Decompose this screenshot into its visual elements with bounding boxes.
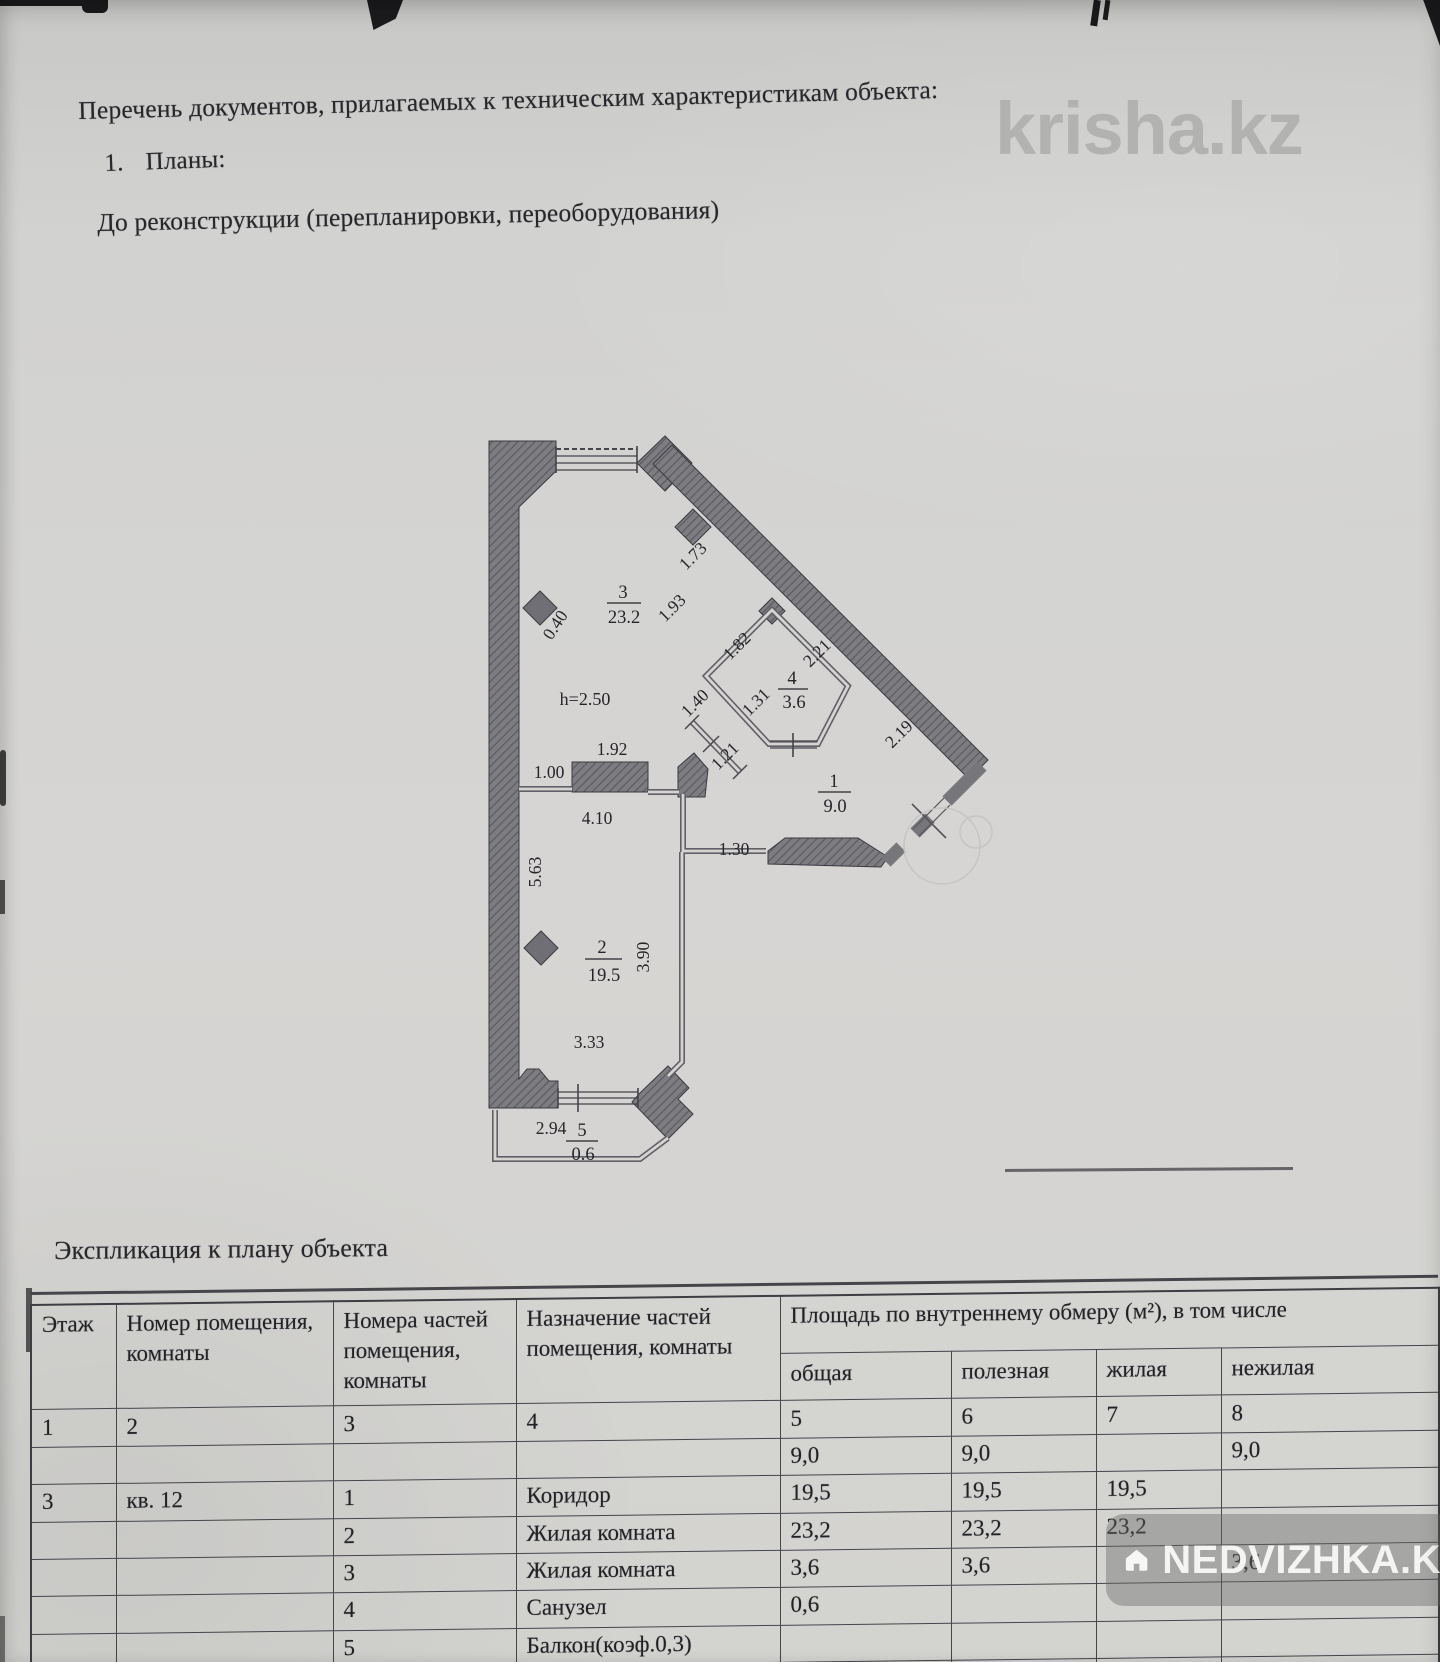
scan-artifact [1090,0,1101,26]
floor-plan: 0.40 1.73 1.93 1.82 2.21 1.31 1.40 1.21 … [440,400,1000,1175]
table-cell: Коридор [516,1476,780,1517]
table-cell: 6 [951,1396,1096,1436]
dim-label-2-94: 2.94 [536,1118,567,1138]
dim-label-3-33: 3.33 [574,1032,605,1052]
col-header-floor: Этаж [31,1303,116,1409]
list-item-number: 1. [104,149,124,178]
table-cell: Жилая комната [516,1513,780,1554]
col-header-area-group: Площадь по внутреннему обмеру (м²), в то… [780,1287,1439,1353]
table-cell: 23,2 [780,1511,951,1550]
scan-artifact [0,880,5,914]
table-cell: 3,6 [951,1546,1096,1585]
room2-area: 19.5 [588,966,620,986]
table-cell [1096,1620,1221,1659]
table-cell: Санузел [516,1588,780,1629]
scan-artifact [82,0,108,13]
room4-number: 4 [787,669,796,689]
table-cell: 5 [333,1628,516,1662]
table-cell [516,1438,780,1479]
dim-label-3-90: 3.90 [633,941,653,972]
table-cell: 2 [333,1516,516,1556]
table-cell: 3,6 [780,1548,951,1587]
dim-label-1-73: 1.73 [675,538,711,574]
table-cell [31,1596,116,1634]
col-header-purpose: Назначение частей помещения, комнаты [516,1295,780,1403]
table-cell: 3 [31,1484,116,1522]
col-header-nonliving: нежилая [1221,1345,1439,1395]
scan-artifact [0,1616,5,1662]
scan-artifact [0,750,6,806]
table-cell [780,1623,951,1662]
table-cell: Балкон(коэф.0,3) [516,1625,780,1662]
stain-mark [904,808,992,884]
table-cell: 9,0 [951,1434,1096,1473]
table-cell: 2 [116,1405,333,1446]
table-cell: 1 [31,1408,116,1447]
table-cell [31,1446,116,1484]
table-cell: 19,5 [951,1472,1096,1511]
dim-label-1-92: 1.92 [597,739,628,759]
table-cell: 7 [1096,1394,1221,1434]
table-cell [31,1558,116,1596]
table-cell: 1 [333,1479,516,1519]
dim-label-1-30: 1.30 [719,839,750,859]
wall-corner-mid [678,753,708,797]
table-cell: 23,2 [951,1509,1096,1548]
nedvizhka-watermark: NEDVIZHKA.KZ [1106,1514,1440,1606]
house-icon [1124,1533,1149,1587]
dim-label-5-63: 5.63 [525,856,545,887]
scan-artifact [1416,0,1440,46]
table-cell [116,1630,333,1662]
table-cell [116,1518,333,1558]
before-reconstruction-label: До реконструкции (перепланировки, переоб… [97,195,720,238]
list-item-plans: 1.Планы: [104,146,226,178]
col-header-room-number: Номер помещения, комнаты [116,1301,333,1408]
dim-label-4-10: 4.10 [582,808,613,828]
stray-line [1005,1167,1293,1172]
scan-artifact [367,0,403,30]
table-cell [1221,1617,1439,1657]
table-cell: 5 [780,1398,951,1438]
table-cell: 19,5 [1096,1470,1221,1509]
table-cell: 0,6 [780,1586,951,1625]
table-cell: 9,0 [1221,1430,1439,1470]
table-cell: кв. 12 [116,1481,333,1521]
room3-area: 23.2 [608,608,640,628]
explication-title: Экспликация к плану объекта [54,1233,388,1266]
table-cell [116,1556,333,1596]
table-cell: 19,5 [780,1473,951,1512]
scan-artifact [1103,0,1111,20]
dim-label-1-93: 1.93 [654,590,690,626]
col-header-living: жилая [1096,1347,1221,1396]
dim-label-1-00: 1.00 [534,762,565,782]
nedvizhka-label: NEDVIZHKA.KZ [1162,1538,1440,1583]
table-cell [951,1658,1096,1662]
wall-partition-192 [572,762,648,792]
table-cell [1221,1468,1439,1508]
table-cell [951,1621,1096,1660]
room1-area: 9.0 [823,797,846,817]
table-cell [951,1584,1096,1623]
table-cell [116,1444,333,1484]
room1-number: 1 [829,772,838,792]
window-bottom [558,1084,638,1112]
table-cell: Жилая комната [516,1550,780,1591]
scanned-page: Перечень документов, прилагаемых к техни… [0,0,1440,1662]
ceiling-height-label: h=2.50 [560,689,611,709]
krisha-watermark: krisha.kz [995,86,1303,171]
table-cell: 4 [516,1400,780,1442]
table-cell: 9,0 [780,1436,951,1475]
document-title: Перечень документов, прилагаемых к техни… [78,74,978,126]
table-cell [1096,1657,1221,1662]
table-cell [31,1521,116,1559]
table-cell: 8 [1221,1392,1439,1433]
table-cell [31,1633,116,1662]
wall-corner-bottom [632,1066,693,1139]
table-cell [1096,1433,1221,1472]
room2-number: 2 [597,938,606,958]
room5-area: 0.6 [571,1145,594,1165]
wall-diagonal [653,445,988,779]
room3-number: 3 [618,583,627,603]
dim-label-1-40: 1.40 [677,685,713,721]
table-cell [333,1441,516,1481]
wall-room1-bottom [768,838,888,867]
col-header-usable: полезная [951,1349,1096,1398]
wall-return-right [886,766,982,862]
table-cell [116,1593,333,1633]
table-cell: 3 [333,1403,516,1444]
col-header-part-numbers: Номера частей помещения, комнаты [333,1299,516,1406]
col-header-total: общая [780,1351,951,1400]
window-top [556,446,637,473]
table-cell: 3 [333,1553,516,1593]
table-cell: 4 [333,1591,516,1631]
list-item-label: Планы: [145,146,226,176]
room4-area: 3.6 [782,693,805,713]
room5-number: 5 [577,1121,586,1141]
